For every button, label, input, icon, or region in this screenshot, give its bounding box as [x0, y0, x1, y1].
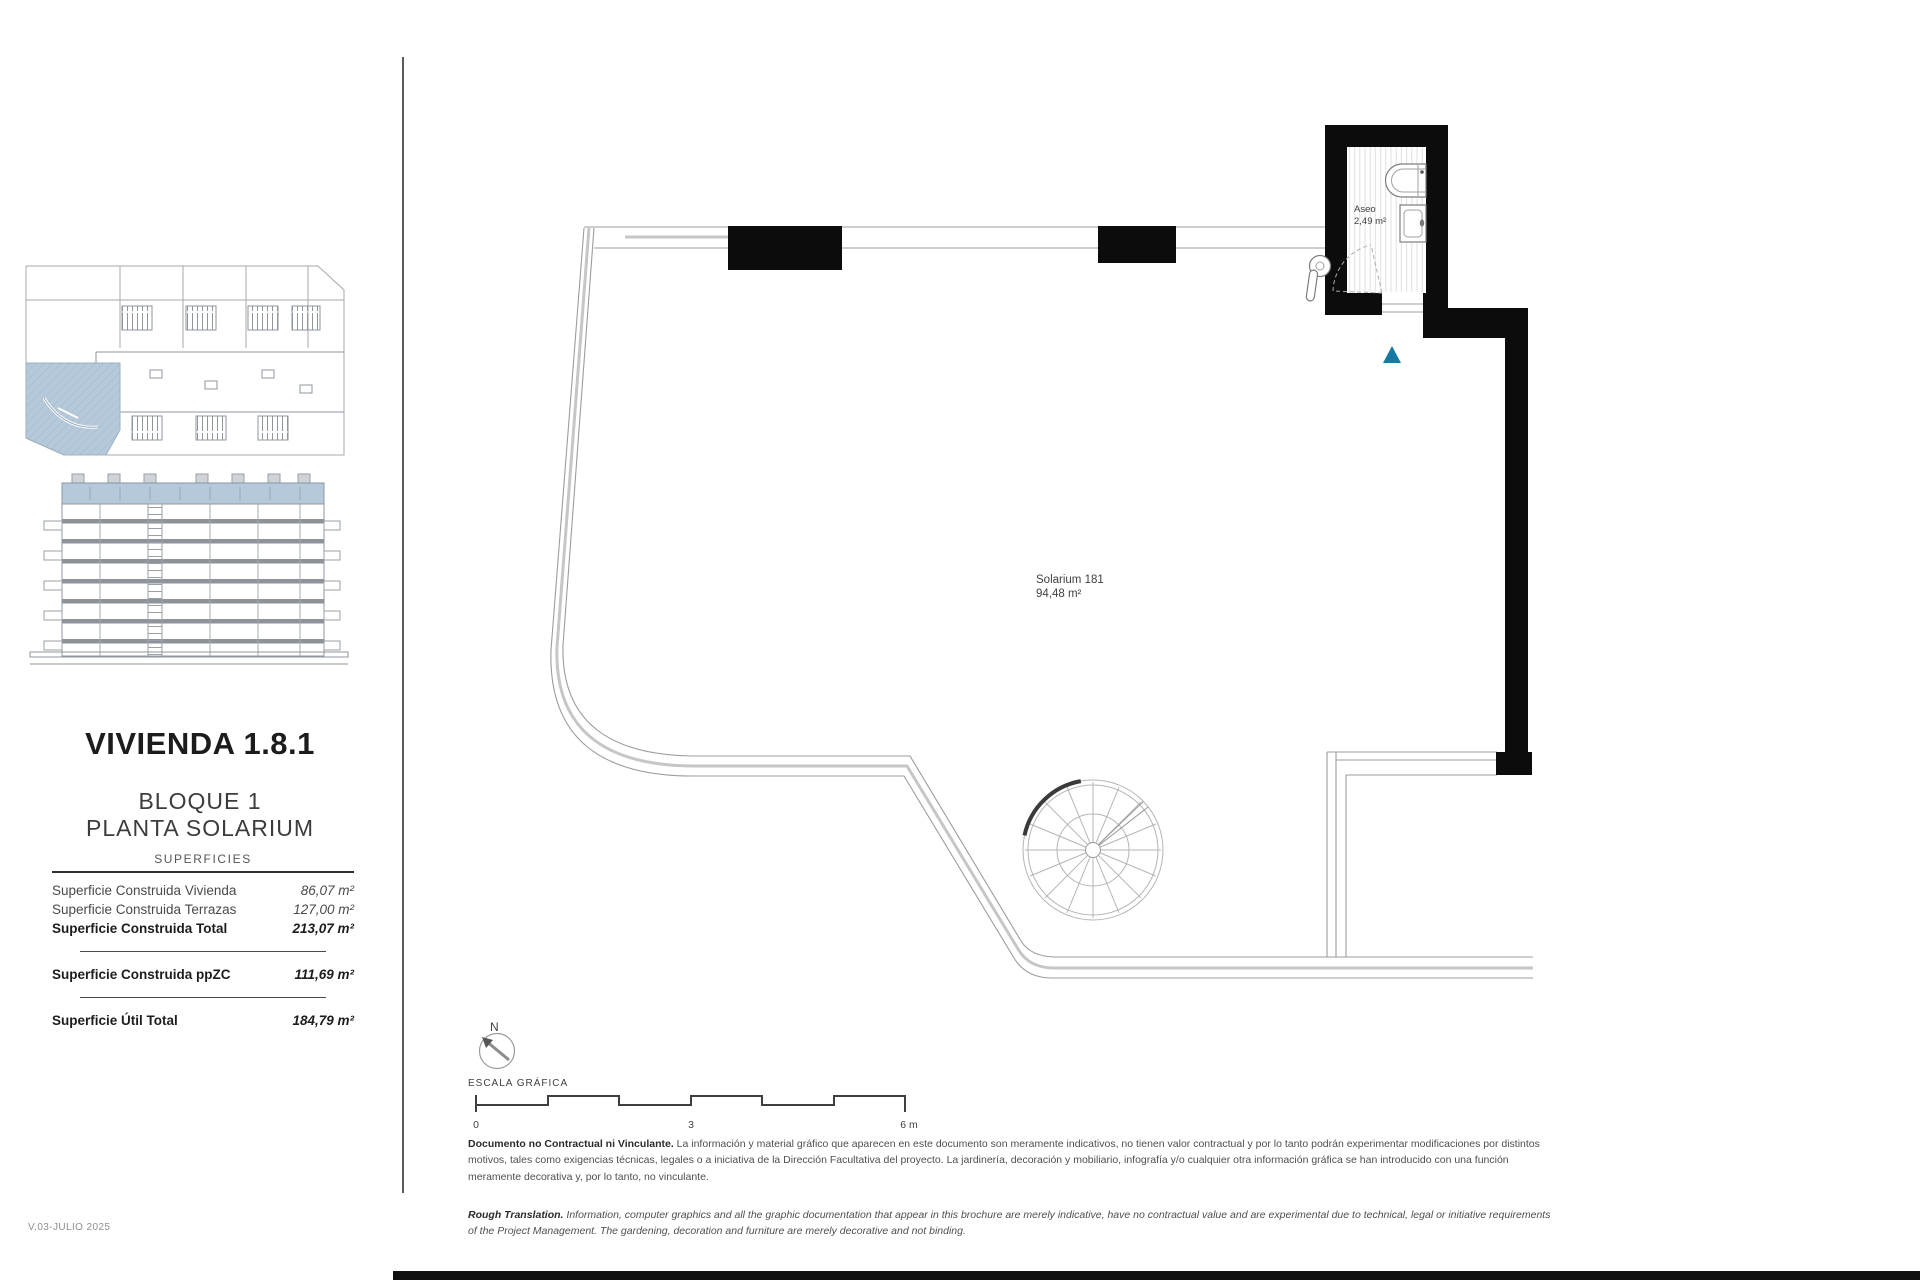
- elevation-roof-stubs: [72, 474, 310, 483]
- north-compass-icon: N: [480, 1020, 515, 1069]
- row-value: 86,07 m²: [301, 881, 354, 900]
- disclaimer-en: Rough Translation. Information, computer…: [468, 1207, 1553, 1240]
- table-row: Superficie Construida Vivienda 86,07 m²: [52, 881, 354, 900]
- solarium-room-label: Solarium 181: [1036, 574, 1104, 586]
- solarium-room-area: 94,48 m²: [1036, 588, 1082, 600]
- subtitle-block: BLOQUE 1: [138, 788, 261, 814]
- surface-table-rule: [52, 871, 354, 873]
- page-title: VIVIENDA 1.8.1: [28, 726, 372, 762]
- subtitle-floor: PLANTA SOLARIUM: [86, 815, 314, 841]
- table-divider: [80, 997, 326, 998]
- aseo-room-label: Aseo: [1354, 204, 1376, 215]
- surface-table-header: SUPERFICIES: [52, 852, 354, 866]
- elevation-solarium-band: [62, 483, 324, 504]
- scale-tick-0: 0: [473, 1119, 479, 1131]
- plan-drawing: Aseo 2,49 m²: [0, 0, 1920, 1280]
- scale-tick-3: 3: [688, 1119, 694, 1131]
- version-note: V.03-JULIO 2025: [28, 1222, 110, 1233]
- row-label: Superficie Construida Vivienda: [52, 881, 236, 900]
- site-highlighted-unit: [26, 363, 120, 455]
- entrance-marker-triangle: [1383, 346, 1401, 363]
- top-wall-segment-1: [728, 226, 842, 270]
- elevation-floor-slabs: [62, 519, 324, 644]
- disclaimer-es-lead: Documento no Contractual ni Vinculante.: [468, 1138, 674, 1150]
- table-row: Superficie Construida Total 213,07 m²: [52, 919, 354, 938]
- table-row: Superficie Construida ppZC 111,69 m²: [52, 965, 354, 984]
- building-elevation: [30, 474, 348, 664]
- top-wall-segment-2: [1098, 226, 1176, 263]
- terrace-parapet: [551, 228, 1533, 978]
- table-row: Superficie Construida Terrazas 127,00 m²: [52, 900, 354, 919]
- row-label: Superficie Construida ppZC: [52, 965, 231, 984]
- row-value: 213,07 m²: [292, 919, 354, 938]
- aseo-room: Aseo 2,49 m²: [1325, 125, 1448, 316]
- page-edge-bar: [393, 1271, 1920, 1280]
- scale-tick-6: 6 m: [900, 1119, 918, 1131]
- brochure-page: Aseo 2,49 m²: [0, 0, 1920, 1280]
- site-building-footprint: [96, 306, 344, 440]
- solarium-floor-plan: Aseo 2,49 m²: [551, 125, 1533, 978]
- row-value: 184,79 m²: [292, 1011, 354, 1030]
- site-key-plan: [26, 266, 344, 455]
- row-label: Superficie Construida Total: [52, 919, 227, 938]
- right-side-wall: [1423, 308, 1532, 775]
- page-subtitle: BLOQUE 1 PLANTA SOLARIUM: [28, 788, 372, 842]
- disclaimer-block: Documento no Contractual ni Vinculante. …: [468, 1136, 1553, 1239]
- graphic-scale: ESCALA GRÁFICA 0 3 6 m: [468, 1076, 918, 1131]
- aseo-room-area: 2,49 m²: [1354, 216, 1386, 227]
- sink-icon: [1400, 205, 1426, 242]
- scale-label: ESCALA GRÁFICA: [468, 1076, 568, 1089]
- table-row: Superficie Útil Total 184,79 m²: [52, 1011, 354, 1030]
- sidebar-divider: [402, 57, 404, 1193]
- table-divider: [80, 951, 326, 952]
- row-label: Superficie Útil Total: [52, 1011, 178, 1030]
- elevation-stair-core: [148, 504, 162, 656]
- north-label: N: [490, 1020, 499, 1034]
- surface-table: SUPERFICIES Superficie Construida Vivien…: [52, 852, 354, 1030]
- bathtub-icon: [1386, 164, 1427, 197]
- row-value: 127,00 m²: [293, 900, 354, 919]
- disclaimer-en-text: Information, computer graphics and all t…: [468, 1209, 1550, 1237]
- row-label: Superficie Construida Terrazas: [52, 900, 236, 919]
- disclaimer-es: Documento no Contractual ni Vinculante. …: [468, 1136, 1553, 1185]
- spiral-staircase: [1023, 780, 1163, 920]
- lower-terrace-parapet: [1327, 752, 1497, 957]
- disclaimer-en-lead: Rough Translation.: [468, 1209, 563, 1221]
- row-value: 111,69 m²: [294, 965, 354, 984]
